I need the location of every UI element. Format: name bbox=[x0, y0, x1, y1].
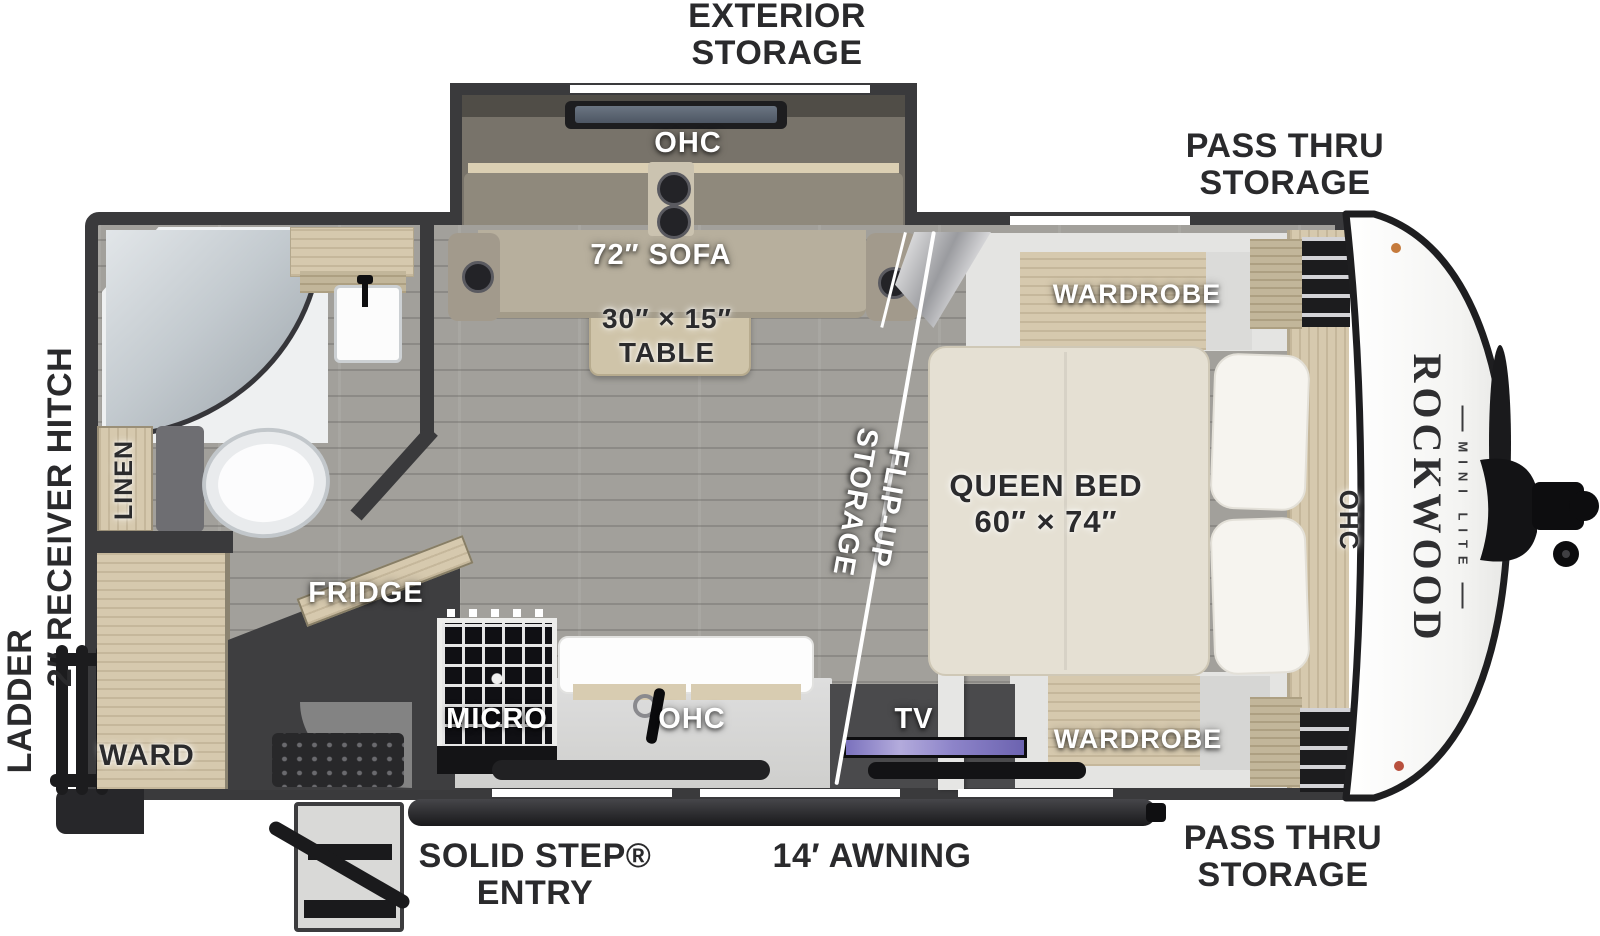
floorplan-canvas: ROCKWOOD MINI LITE EXTERIOR STORAGE PASS… bbox=[0, 0, 1600, 936]
hitch-coupler bbox=[1569, 491, 1599, 521]
tv-icon bbox=[843, 737, 1027, 758]
bath-wall-right bbox=[420, 225, 434, 433]
pass-thru-storage-top-label: PASS THRU STORAGE bbox=[1145, 128, 1425, 202]
marker-light-icon bbox=[1394, 761, 1404, 771]
table-label: 30″ × 15″ TABLE bbox=[588, 302, 746, 370]
brand-series-wrap: MINI LITE bbox=[1454, 385, 1474, 630]
cupholder-icon bbox=[462, 261, 494, 293]
awning-bar bbox=[408, 799, 1156, 826]
ladder-label: LADDER bbox=[3, 596, 37, 806]
brand-series: MINI LITE bbox=[1456, 395, 1471, 618]
pass-thru-storage-bottom-label: PASS THRU STORAGE bbox=[1143, 820, 1423, 894]
queen-bed-label: QUEEN BED 60″ × 74″ bbox=[926, 468, 1166, 540]
pillow bbox=[1209, 352, 1310, 511]
bath-faucet-head bbox=[357, 275, 373, 284]
wardrobe-top-label: WARDROBE bbox=[1027, 277, 1247, 311]
counter-front-strip bbox=[492, 760, 770, 780]
exterior-storage-label: EXTERIOR STORAGE bbox=[637, 0, 917, 72]
step-tread bbox=[304, 900, 396, 918]
fridge-label: FRIDGE bbox=[286, 576, 446, 610]
ohc-slide-label: OHC bbox=[638, 126, 738, 160]
brand-name: ROCKWOOD bbox=[1405, 353, 1452, 644]
kitchen-ohc-shelf bbox=[573, 684, 686, 700]
receiver-hitch-label-text: 2″ RECEIVER HITCH bbox=[42, 347, 79, 687]
receiver-hitch-label: 2″ RECEIVER HITCH bbox=[43, 327, 77, 707]
marker-light-icon bbox=[1391, 243, 1401, 253]
vanity-counter bbox=[290, 227, 414, 277]
nightstand-top bbox=[1250, 239, 1302, 329]
bedroom-window-icon bbox=[1010, 216, 1190, 225]
linen-label: LINEN bbox=[111, 410, 137, 550]
ward-label: WARD bbox=[87, 741, 207, 771]
tv-label: TV bbox=[874, 702, 954, 736]
propane-cover bbox=[1480, 459, 1537, 562]
awning-label: 14′ AWNING bbox=[732, 838, 1012, 875]
kitchen-ohc-shelf bbox=[691, 684, 801, 700]
wardrobe-bottom-label: WARDROBE bbox=[1028, 722, 1248, 756]
ohc-front-label: OHC bbox=[1335, 470, 1363, 570]
soundbar-icon bbox=[868, 762, 1086, 779]
brand-logo: ROCKWOOD bbox=[1406, 329, 1450, 669]
jack-wheel-hub bbox=[1562, 550, 1570, 558]
cupholder-icon bbox=[657, 205, 691, 239]
linen-label-text: LINEN bbox=[110, 440, 139, 520]
toilet-tank bbox=[156, 426, 204, 532]
micro-label: MICRO bbox=[417, 702, 577, 736]
kitchen-window-icon bbox=[492, 789, 672, 797]
bedroom-window-icon bbox=[958, 789, 1113, 797]
bath-sink-icon bbox=[334, 285, 402, 363]
slide-window-glass bbox=[575, 106, 777, 123]
stove-knobs bbox=[447, 609, 547, 617]
ohc-kitchen-label: OHC bbox=[642, 702, 742, 736]
sofa-label: 72″ SOFA bbox=[561, 238, 761, 272]
ohc-front-label-text: OHC bbox=[1334, 490, 1365, 551]
kitchen-window-icon bbox=[700, 789, 900, 797]
slide-end-window-icon bbox=[570, 85, 870, 93]
solid-step-entry-label: SOLID STEP® ENTRY bbox=[395, 838, 675, 912]
pillow bbox=[1209, 516, 1310, 675]
nightstand-bottom bbox=[1250, 697, 1302, 787]
cupholder-icon bbox=[657, 172, 691, 206]
doormat-icon bbox=[272, 733, 404, 787]
rear-bumper bbox=[56, 789, 144, 834]
ladder-label-text: LADDER bbox=[2, 629, 39, 774]
